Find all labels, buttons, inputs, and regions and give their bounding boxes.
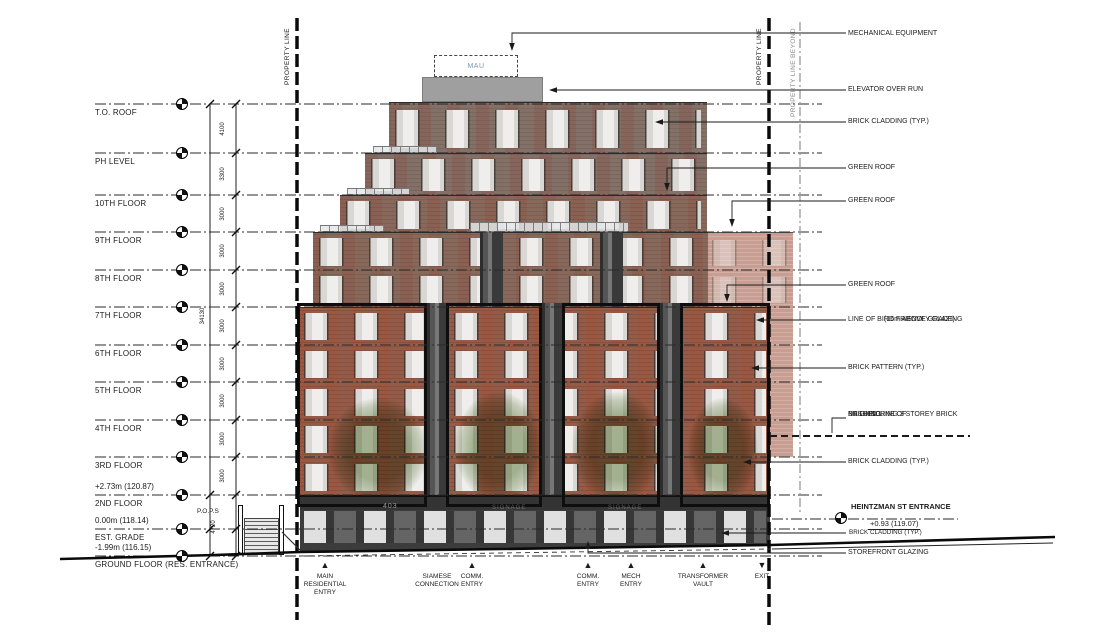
annotation-line: STOREFRONT GLAZING <box>848 548 929 558</box>
leader-arrowhead <box>721 530 729 536</box>
annotation-line: BUILDING <box>848 410 881 420</box>
property-line-label-right: PROPERTY LINE <box>756 28 763 85</box>
level-label: PH LEVEL <box>95 157 135 166</box>
entry-label-line: ENTRY <box>434 581 510 589</box>
property-line-beyond-label: PROPERTY LINE BEYOND <box>790 28 797 117</box>
level-elevation: 0.00m (118.14) <box>95 516 149 525</box>
level-label: 2ND FLOOR <box>95 499 143 508</box>
datum-marker <box>176 489 188 501</box>
datum-marker <box>176 189 188 201</box>
entry-label: EXIT <box>724 573 800 581</box>
leader-line <box>667 168 846 189</box>
dim-segment: 3300 <box>220 167 226 180</box>
annotation-line: BRICK CLADDING (TYP.) <box>848 457 929 467</box>
leader-arrowhead <box>743 459 751 465</box>
elevation-drawing: 403 SIGNAGE SIGNAGE MAU P.O.P.S PROPERTY… <box>0 0 1100 640</box>
level-label: 3RD FLOOR <box>95 461 143 470</box>
dim-segment: 3000 <box>220 319 226 332</box>
property-line-label-left: PROPERTY LINE <box>284 28 291 85</box>
datum-marker <box>176 451 188 463</box>
entry-label: MECHENTRY <box>593 573 669 589</box>
level-label: 5TH FLOOR <box>95 386 142 395</box>
entry-arrow-up: ▲ <box>699 561 708 570</box>
datum-marker-heintzman <box>835 512 847 524</box>
entry-label: MAINRESIDENTIALENTRY <box>287 573 363 597</box>
entry-label-line: EXIT <box>724 573 800 581</box>
leader-arrowhead <box>585 541 591 549</box>
entry-label-line: MAIN <box>287 573 363 581</box>
level-elevation: +2.73m (120.87) <box>95 482 154 491</box>
datum-marker <box>176 147 188 159</box>
annotation-line: ELEVATOR OVER RUN <box>848 85 923 95</box>
exit-arrow-down: ▼ <box>758 561 767 570</box>
dim-segment: 3000 <box>220 207 226 220</box>
entry-label: COMM.ENTRY <box>434 573 510 589</box>
entry-label-line: ENTRY <box>593 581 669 589</box>
leader-line <box>732 201 846 225</box>
entry-label-line: MECH <box>593 573 669 581</box>
datum-marker <box>176 98 188 110</box>
dim-segment: 3000 <box>220 432 226 445</box>
level-label: 7TH FLOOR <box>95 311 142 320</box>
level-elevation: -1.99m (116.15) <box>95 543 151 552</box>
level-label: EST. GRADE <box>95 533 145 542</box>
annotation-line: BRICK CLADDING (TYP.) <box>848 117 929 127</box>
level-label: 6TH FLOOR <box>95 349 142 358</box>
level-label: GROUND FLOOR (RES. ENTRANCE) <box>95 560 238 569</box>
annotation-line: BRICK PATTERN (TYP.) <box>848 363 924 373</box>
dim-bottom: 4720 <box>211 520 217 533</box>
datum-marker <box>176 226 188 238</box>
leader-line <box>727 285 846 300</box>
datum-marker <box>176 301 188 313</box>
dim-segment: 3000 <box>220 357 226 370</box>
leader-arrowhead <box>729 219 735 227</box>
datum-marker <box>176 523 188 535</box>
heintzman-entrance-label: HEINTZMAN ST ENTRANCE <box>851 502 951 511</box>
datum-marker <box>176 414 188 426</box>
level-label: 4TH FLOOR <box>95 424 142 433</box>
entry-label-line: COMM. <box>434 573 510 581</box>
entry-label-line: RESIDENTIAL <box>287 581 363 589</box>
leader-arrowhead <box>756 317 764 323</box>
leader-arrowhead <box>751 365 759 371</box>
datum-marker <box>176 339 188 351</box>
dim-segment: 3000 <box>220 469 226 482</box>
entry-arrow-up: ▲ <box>468 561 477 570</box>
entry-arrow-up: ▲ <box>321 561 330 570</box>
dim-total: 34130 <box>200 308 206 325</box>
dim-segment: 4100 <box>220 122 226 135</box>
dim-segment: 3000 <box>220 244 226 257</box>
leader-arrowhead <box>549 87 557 93</box>
dim-segment: 3000 <box>220 282 226 295</box>
heintzman-brick-note: BRICK CLADDING (TYP.) <box>849 529 922 536</box>
annotation-line: GREEN ROOF <box>848 163 895 173</box>
entry-arrow-up: ▲ <box>627 561 636 570</box>
level-label: T.O. ROOF <box>95 108 137 117</box>
annotation-line: (16m ABOVE GRADE) <box>848 315 955 325</box>
dim-segment: 3000 <box>220 394 226 407</box>
entry-label-line: VAULT <box>665 581 741 589</box>
entry-label-line: ENTRY <box>287 589 363 597</box>
level-label: 9TH FLOOR <box>95 236 142 245</box>
annotation-line: MECHANICAL EQUIPMENT <box>848 29 937 39</box>
pops-label: P.O.P.S <box>197 508 219 515</box>
leader-arrowhead <box>724 294 730 302</box>
annotation-line: GREEN ROOF <box>848 196 895 206</box>
datum-marker <box>176 376 188 388</box>
entry-arrow-up: ▲ <box>584 561 593 570</box>
annotation-line: GREEN ROOF <box>848 280 895 290</box>
datum-marker <box>176 264 188 276</box>
leader-arrowhead <box>509 43 515 51</box>
leader-line <box>832 418 846 433</box>
level-label: 10TH FLOOR <box>95 199 146 208</box>
leader-arrowhead <box>655 119 663 125</box>
level-label: 8TH FLOOR <box>95 274 142 283</box>
leader-arrowhead <box>664 183 670 191</box>
